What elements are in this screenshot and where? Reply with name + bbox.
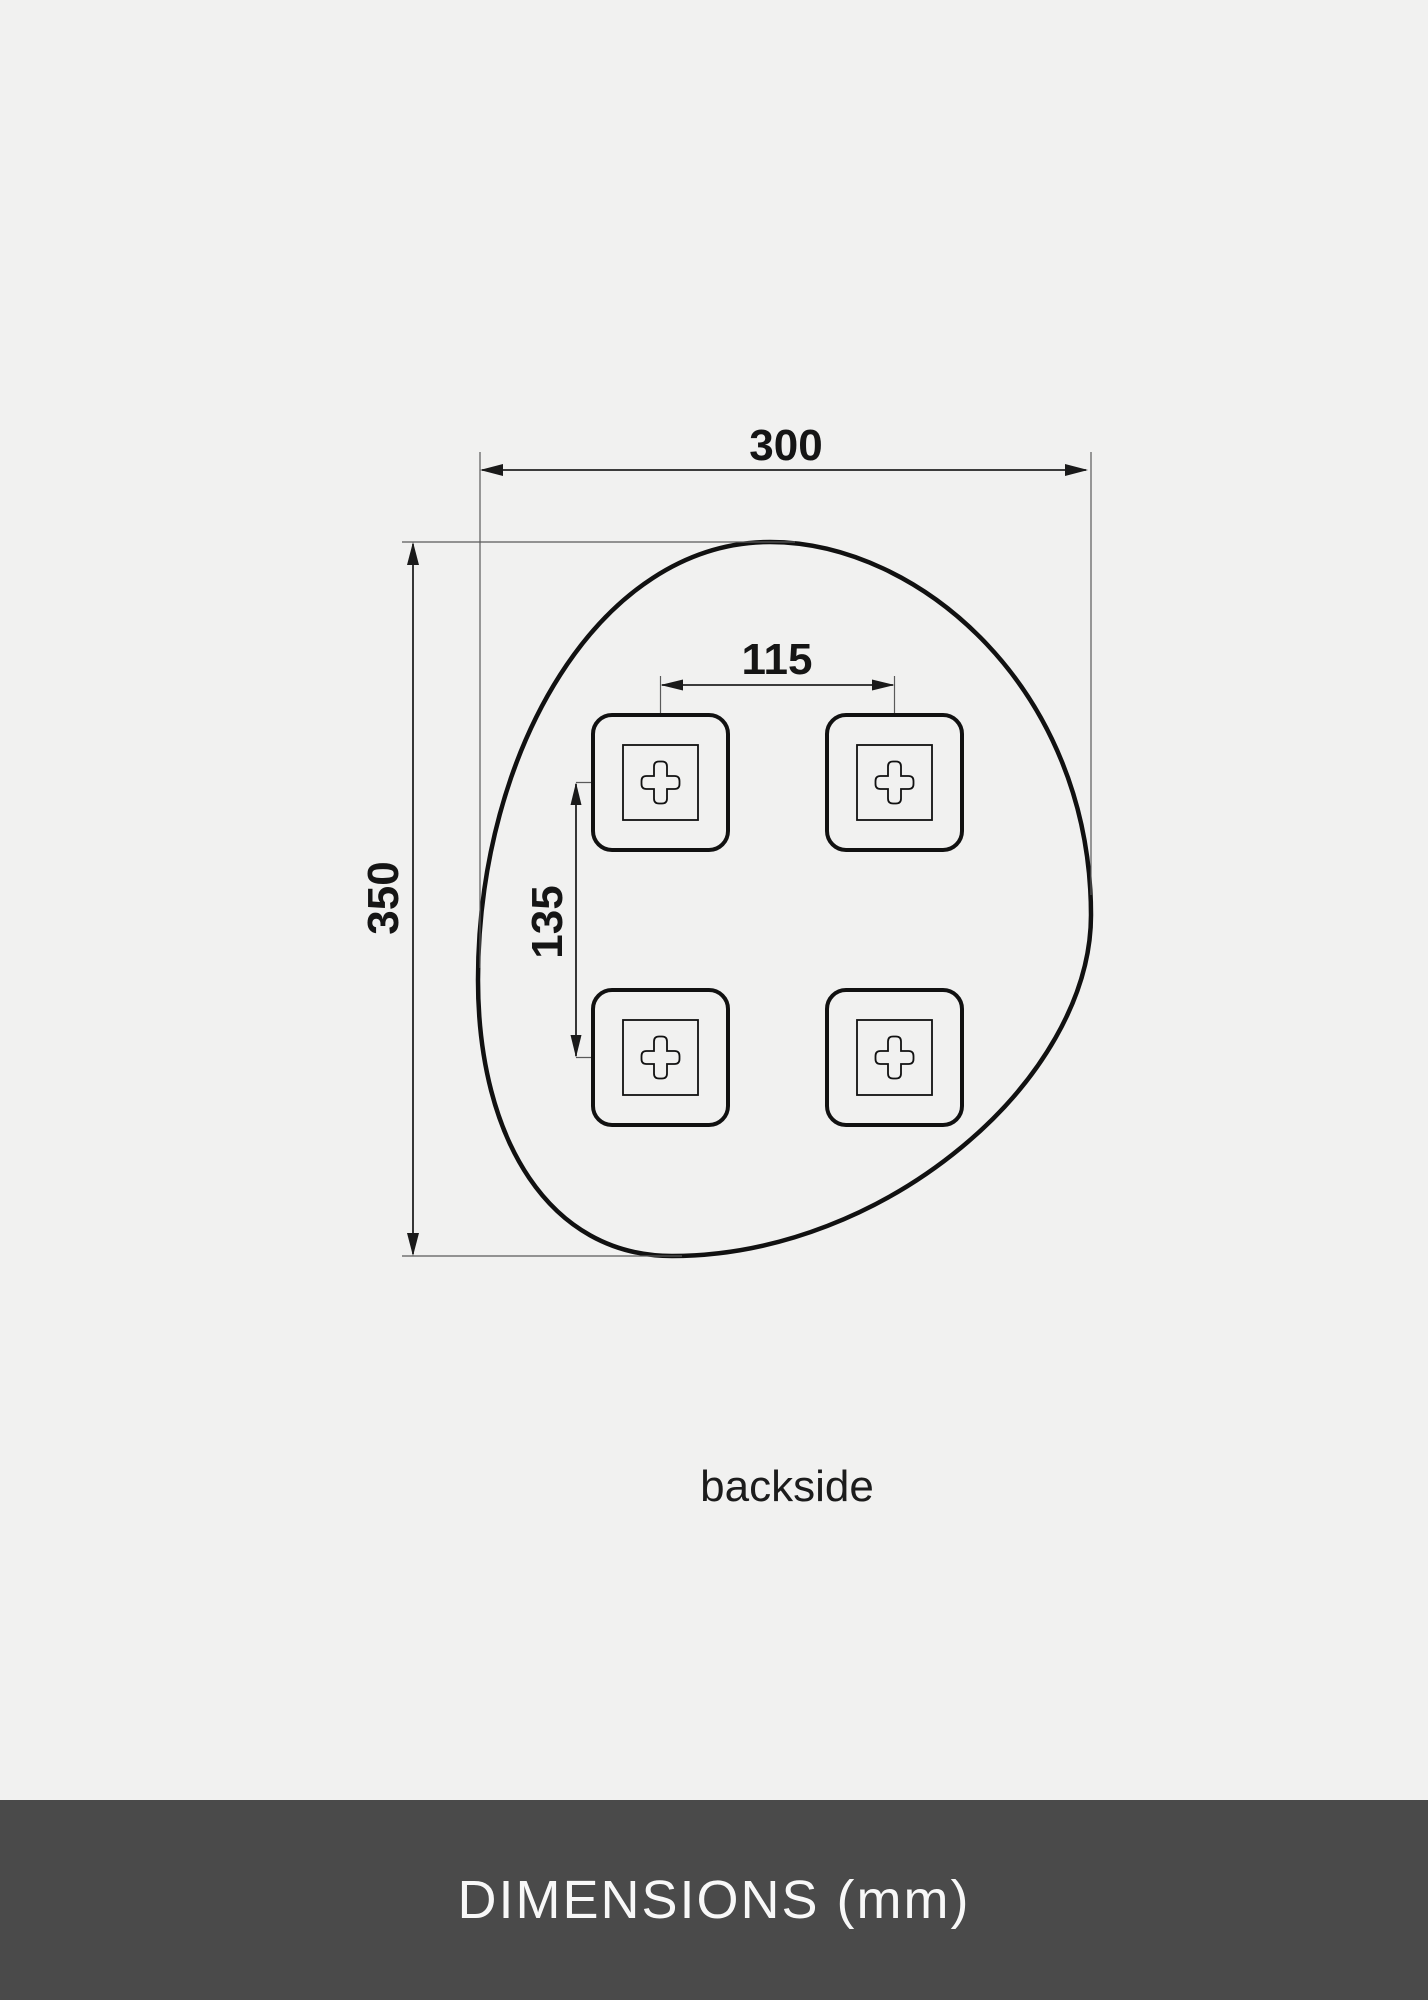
mounting-bracket-bottom-left: [593, 990, 728, 1125]
spacing-v-dimension-value: 135: [523, 885, 572, 958]
footer-title: DIMENSIONS (mm): [458, 1869, 971, 1931]
height-dimension-value: 350: [359, 861, 408, 934]
spacing-h-dimension-value: 115: [742, 635, 813, 684]
width-arrow-right: [1065, 464, 1088, 476]
height-arrow-top: [407, 542, 419, 565]
spacing-h-arrow-left: [661, 680, 684, 691]
dimension-lines: [413, 470, 1086, 1254]
mounting-bracket-top-right: [827, 715, 962, 850]
dimension-diagram-page: 300 350 115 135 backside DIMENSIONS (mm): [0, 0, 1428, 2000]
dimension-drawing: 300 350 115 135 backside: [0, 0, 1428, 1800]
width-dimension-value: 300: [749, 421, 822, 470]
height-arrow-bottom: [407, 1233, 419, 1256]
mounting-bracket-top-left: [593, 715, 728, 850]
footer-bar: DIMENSIONS (mm): [0, 1800, 1428, 2000]
spacing-h-arrow-right: [872, 680, 895, 691]
mounting-bracket-bottom-right: [827, 990, 962, 1125]
spacing-v-arrow-bottom: [571, 1035, 582, 1058]
width-arrow-left: [480, 464, 503, 476]
spacing-v-arrow-top: [571, 783, 582, 806]
view-label: backside: [700, 1462, 874, 1511]
